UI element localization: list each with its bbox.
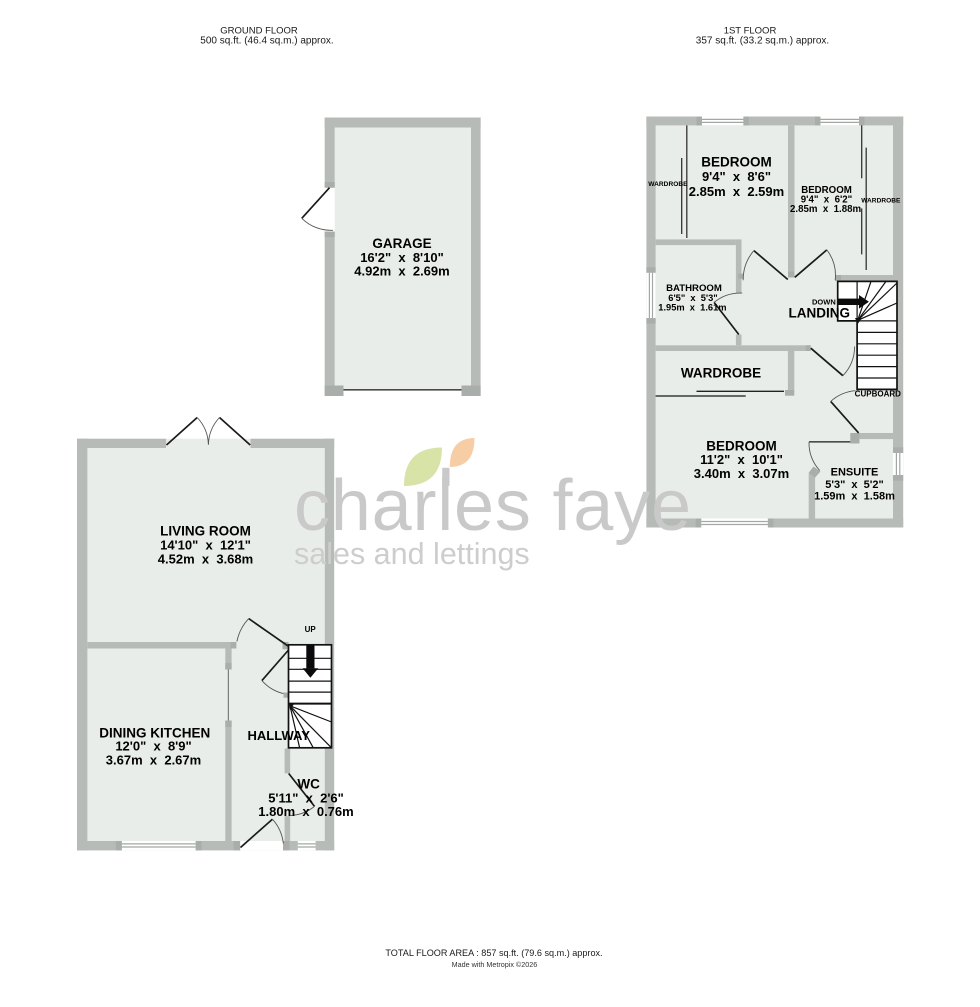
svg-text:2.85m x 1.88m: 2.85m x 1.88m <box>790 204 861 215</box>
svg-text:3.40m x 3.07m: 3.40m x 3.07m <box>694 466 789 481</box>
svg-text:ENSUITE: ENSUITE <box>831 467 879 479</box>
svg-text:14'10" x 12'1": 14'10" x 12'1" <box>160 538 251 553</box>
svg-text:Made with Metropix ©2026: Made with Metropix ©2026 <box>452 960 538 969</box>
svg-text:1.95m x 1.61m: 1.95m x 1.61m <box>658 302 726 312</box>
svg-text:BEDROOM: BEDROOM <box>701 155 772 170</box>
svg-text:CUPBOARD: CUPBOARD <box>855 389 901 398</box>
svg-text:sales and lettings: sales and lettings <box>294 537 530 571</box>
svg-text:charles faye: charles faye <box>294 466 692 546</box>
svg-text:WC: WC <box>297 777 320 792</box>
svg-text:2.85m x 2.59m: 2.85m x 2.59m <box>689 184 784 199</box>
svg-text:UP: UP <box>305 625 317 634</box>
svg-text:11'2" x 10'1": 11'2" x 10'1" <box>700 452 783 467</box>
svg-text:1.59m x 1.58m: 1.59m x 1.58m <box>814 491 895 503</box>
svg-text:500 sq.ft. (46.4 sq.m.) approx: 500 sq.ft. (46.4 sq.m.) approx. <box>200 36 333 47</box>
svg-text:5'3" x 5'2": 5'3" x 5'2" <box>825 479 883 491</box>
svg-text:GARAGE: GARAGE <box>372 236 431 251</box>
svg-text:1.80m x 0.76m: 1.80m x 0.76m <box>258 804 353 819</box>
svg-text:WARDROBE: WARDROBE <box>861 198 901 205</box>
svg-text:357 sq.ft. (33.2 sq.m.) approx: 357 sq.ft. (33.2 sq.m.) approx. <box>696 36 829 47</box>
svg-text:LANDING: LANDING <box>789 305 851 320</box>
svg-text:WARDROBE: WARDROBE <box>648 181 688 188</box>
svg-text:4.92m x 2.69m: 4.92m x 2.69m <box>354 264 449 279</box>
svg-text:HALLWAY: HALLWAY <box>248 728 311 743</box>
svg-text:4.52m x 3.68m: 4.52m x 3.68m <box>158 552 253 567</box>
svg-text:12'0" x 8'9": 12'0" x 8'9" <box>115 738 191 753</box>
svg-text:3.67m x 2.67m: 3.67m x 2.67m <box>106 752 201 767</box>
svg-text:TOTAL FLOOR AREA : 857 sq.ft.: TOTAL FLOOR AREA : 857 sq.ft. (79.6 sq.m… <box>385 948 602 958</box>
svg-text:WARDROBE: WARDROBE <box>681 366 761 381</box>
svg-text:9'4" x 8'6": 9'4" x 8'6" <box>702 169 771 184</box>
svg-text:LIVING ROOM: LIVING ROOM <box>160 523 251 538</box>
